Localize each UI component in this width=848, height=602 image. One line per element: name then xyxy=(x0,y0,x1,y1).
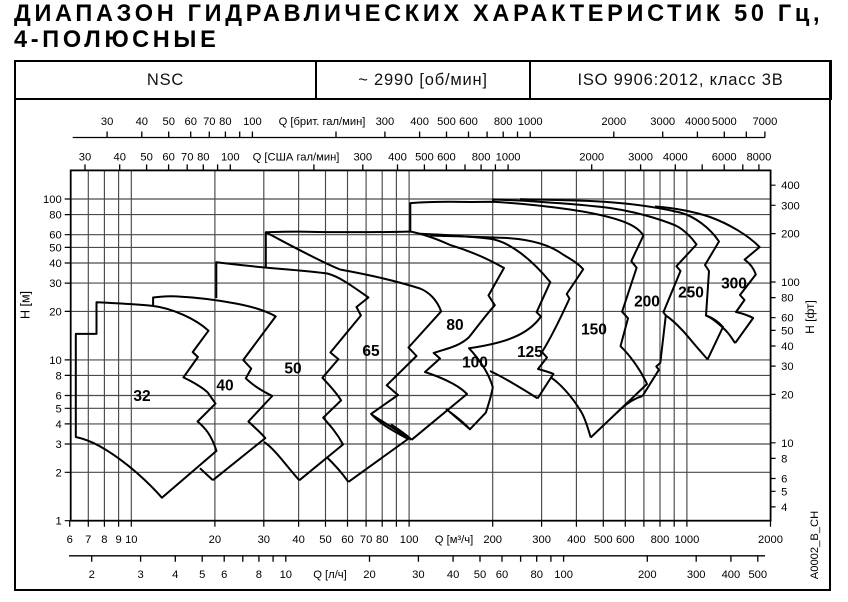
svg-text:600: 600 xyxy=(437,152,456,164)
svg-text:100: 100 xyxy=(781,277,800,289)
svg-text:80: 80 xyxy=(781,293,793,305)
svg-text:300: 300 xyxy=(687,569,706,581)
svg-text:40: 40 xyxy=(292,534,304,546)
svg-text:7: 7 xyxy=(85,534,91,546)
svg-text:2000: 2000 xyxy=(758,534,783,546)
svg-text:500: 500 xyxy=(415,152,434,164)
svg-text:80: 80 xyxy=(219,116,231,128)
svg-text:500: 500 xyxy=(748,569,767,581)
svg-text:150: 150 xyxy=(581,322,607,339)
svg-text:800: 800 xyxy=(494,116,513,128)
svg-text:60: 60 xyxy=(162,152,174,164)
svg-text:8: 8 xyxy=(256,569,262,581)
svg-text:200: 200 xyxy=(781,229,800,241)
svg-text:50: 50 xyxy=(474,569,486,581)
svg-text:400: 400 xyxy=(781,180,800,192)
svg-text:7000: 7000 xyxy=(752,116,777,128)
svg-text:1000: 1000 xyxy=(674,534,699,546)
svg-text:40: 40 xyxy=(447,569,459,581)
svg-text:4: 4 xyxy=(172,569,178,581)
svg-text:6: 6 xyxy=(55,391,61,403)
svg-text:20: 20 xyxy=(209,534,221,546)
svg-text:300: 300 xyxy=(353,152,372,164)
svg-text:70: 70 xyxy=(203,116,215,128)
svg-text:400: 400 xyxy=(567,534,586,546)
svg-text:8: 8 xyxy=(101,534,107,546)
svg-text:Q [США гал/мин]: Q [США гал/мин] xyxy=(253,152,340,164)
svg-text:500: 500 xyxy=(437,116,456,128)
svg-text:32: 32 xyxy=(133,388,150,405)
svg-text:8000: 8000 xyxy=(746,152,771,164)
svg-text:2: 2 xyxy=(55,467,61,479)
svg-text:100: 100 xyxy=(462,355,488,372)
svg-text:3: 3 xyxy=(137,569,143,581)
svg-text:10: 10 xyxy=(125,534,137,546)
svg-text:Q [л/ч]: Q [л/ч] xyxy=(313,569,347,581)
svg-text:80: 80 xyxy=(49,210,61,222)
svg-text:60: 60 xyxy=(341,534,353,546)
svg-text:5: 5 xyxy=(781,486,787,498)
svg-text:70: 70 xyxy=(360,534,372,546)
svg-text:600: 600 xyxy=(459,116,478,128)
svg-text:60: 60 xyxy=(49,230,61,242)
svg-text:250: 250 xyxy=(678,285,704,302)
svg-text:80: 80 xyxy=(197,152,209,164)
svg-text:30: 30 xyxy=(258,534,270,546)
svg-text:100: 100 xyxy=(243,116,262,128)
svg-text:5000: 5000 xyxy=(712,116,737,128)
svg-text:50: 50 xyxy=(284,361,301,378)
svg-text:300: 300 xyxy=(532,534,551,546)
svg-text:30: 30 xyxy=(412,569,424,581)
svg-text:50: 50 xyxy=(319,534,331,546)
svg-text:500: 500 xyxy=(594,534,613,546)
svg-text:30: 30 xyxy=(49,278,61,290)
svg-text:800: 800 xyxy=(651,534,670,546)
svg-text:80: 80 xyxy=(530,569,542,581)
svg-text:80: 80 xyxy=(446,317,463,334)
svg-text:20: 20 xyxy=(363,569,375,581)
svg-text:50: 50 xyxy=(781,325,793,337)
svg-text:40: 40 xyxy=(216,378,233,395)
svg-text:1000: 1000 xyxy=(496,152,521,164)
svg-text:H [м]: H [м] xyxy=(19,291,33,319)
svg-text:3: 3 xyxy=(55,439,61,451)
svg-text:Q [брит. гал/мин]: Q [брит. гал/мин] xyxy=(279,116,366,128)
svg-text:20: 20 xyxy=(781,389,793,401)
svg-text:5: 5 xyxy=(55,403,61,415)
svg-text:60: 60 xyxy=(496,569,508,581)
svg-text:A0002_B_CH: A0002_B_CH xyxy=(809,511,821,579)
svg-text:Q [м³/ч]: Q [м³/ч] xyxy=(435,534,473,546)
svg-text:2000: 2000 xyxy=(601,116,626,128)
svg-text:60: 60 xyxy=(781,313,793,325)
svg-text:30: 30 xyxy=(79,152,91,164)
svg-text:50: 50 xyxy=(140,152,152,164)
svg-text:80: 80 xyxy=(376,534,388,546)
svg-text:40: 40 xyxy=(49,258,61,270)
svg-text:300: 300 xyxy=(376,116,395,128)
svg-text:1: 1 xyxy=(55,516,61,528)
svg-text:100: 100 xyxy=(221,152,240,164)
svg-text:6: 6 xyxy=(67,534,73,546)
svg-text:800: 800 xyxy=(472,152,491,164)
svg-text:200: 200 xyxy=(634,294,660,311)
svg-text:40: 40 xyxy=(113,152,125,164)
svg-text:300: 300 xyxy=(781,200,800,212)
svg-text:4: 4 xyxy=(781,502,787,514)
svg-text:100: 100 xyxy=(554,569,573,581)
svg-text:400: 400 xyxy=(388,152,407,164)
svg-text:5: 5 xyxy=(199,569,205,581)
svg-text:4000: 4000 xyxy=(685,116,710,128)
svg-text:8: 8 xyxy=(781,453,787,465)
svg-text:30: 30 xyxy=(781,361,793,373)
svg-text:40: 40 xyxy=(781,341,793,353)
svg-text:300: 300 xyxy=(721,276,747,293)
svg-text:6: 6 xyxy=(781,474,787,486)
svg-text:1000: 1000 xyxy=(518,116,543,128)
svg-text:3000: 3000 xyxy=(628,152,653,164)
svg-text:60: 60 xyxy=(184,116,196,128)
svg-text:H [фт]: H [фт] xyxy=(803,300,817,334)
svg-text:50: 50 xyxy=(162,116,174,128)
svg-text:6: 6 xyxy=(221,569,227,581)
svg-text:200: 200 xyxy=(483,534,502,546)
svg-text:9: 9 xyxy=(115,534,121,546)
svg-text:200: 200 xyxy=(638,569,657,581)
svg-text:10: 10 xyxy=(280,569,292,581)
svg-text:10: 10 xyxy=(781,438,793,450)
svg-text:40: 40 xyxy=(136,116,148,128)
svg-text:125: 125 xyxy=(517,344,543,361)
svg-text:400: 400 xyxy=(722,569,741,581)
svg-text:4000: 4000 xyxy=(663,152,688,164)
svg-text:50: 50 xyxy=(49,242,61,254)
svg-text:10: 10 xyxy=(49,355,61,367)
svg-text:100: 100 xyxy=(43,194,62,206)
svg-text:20: 20 xyxy=(49,306,61,318)
svg-text:2: 2 xyxy=(89,569,95,581)
svg-text:600: 600 xyxy=(616,534,635,546)
svg-text:100: 100 xyxy=(400,534,419,546)
svg-text:2000: 2000 xyxy=(579,152,604,164)
svg-text:70: 70 xyxy=(181,152,193,164)
svg-text:65: 65 xyxy=(362,343,380,360)
svg-text:8: 8 xyxy=(55,370,61,382)
svg-text:4: 4 xyxy=(55,419,61,431)
svg-text:3000: 3000 xyxy=(650,116,675,128)
svg-text:6000: 6000 xyxy=(712,152,737,164)
svg-text:400: 400 xyxy=(410,116,429,128)
svg-text:30: 30 xyxy=(101,116,113,128)
